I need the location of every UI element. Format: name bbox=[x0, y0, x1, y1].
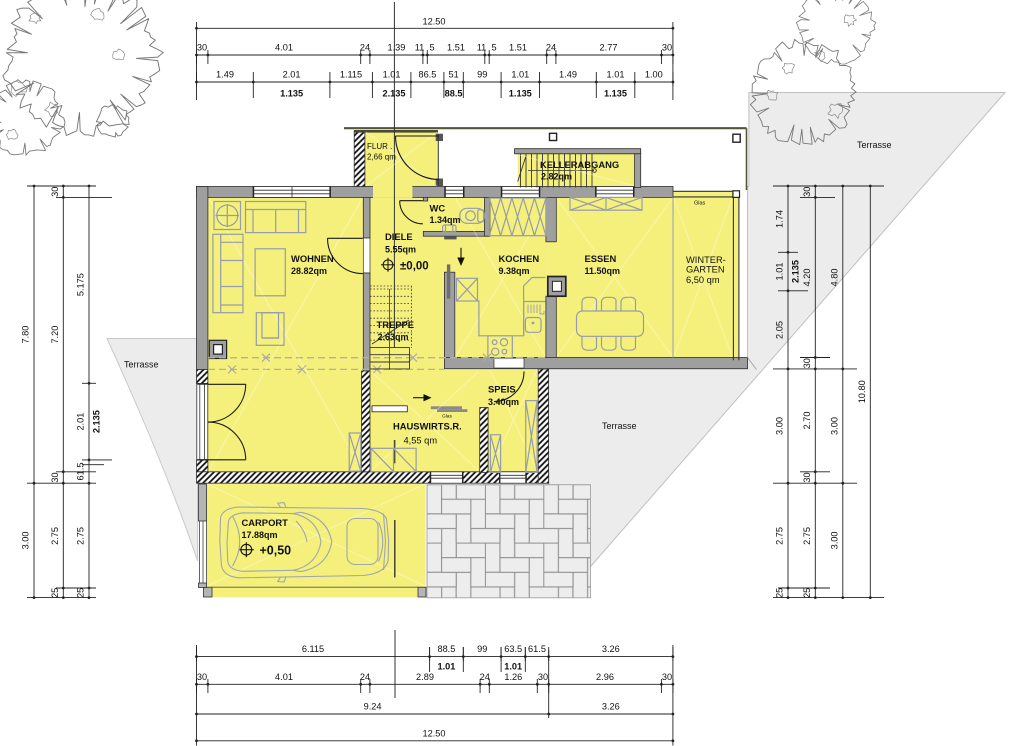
svg-text:30: 30 bbox=[662, 43, 672, 53]
svg-text:DIELE: DIELE bbox=[385, 231, 413, 242]
svg-text:5: 5 bbox=[491, 43, 496, 53]
svg-text:11.50qm: 11.50qm bbox=[585, 266, 621, 276]
svg-text:61.5: 61.5 bbox=[528, 644, 546, 654]
svg-text:1.01: 1.01 bbox=[383, 70, 401, 80]
svg-text:Glas: Glas bbox=[442, 414, 452, 420]
svg-text:2.70: 2.70 bbox=[802, 411, 812, 429]
svg-text:1.26: 1.26 bbox=[504, 672, 522, 682]
svg-text:2.75: 2.75 bbox=[50, 527, 60, 545]
svg-text:6.115: 6.115 bbox=[302, 644, 324, 654]
svg-text:WINTER-: WINTER- bbox=[686, 255, 726, 265]
svg-text:30: 30 bbox=[50, 472, 60, 482]
svg-text:3.26: 3.26 bbox=[602, 702, 620, 712]
svg-text:KOCHEN: KOCHEN bbox=[499, 253, 540, 264]
svg-text:5: 5 bbox=[429, 43, 434, 53]
svg-text:TREPPE: TREPPE bbox=[377, 319, 415, 330]
svg-text:51: 51 bbox=[448, 70, 458, 80]
svg-text:9.24: 9.24 bbox=[364, 702, 382, 712]
svg-text:4.01: 4.01 bbox=[275, 43, 293, 53]
svg-text:1.115: 1.115 bbox=[340, 70, 362, 80]
svg-text:1.74: 1.74 bbox=[775, 210, 785, 228]
svg-text:3.00: 3.00 bbox=[829, 417, 839, 435]
svg-text:86.5: 86.5 bbox=[418, 70, 436, 80]
svg-text:2.135: 2.135 bbox=[791, 260, 801, 283]
svg-text:2.75: 2.75 bbox=[775, 527, 785, 545]
svg-text:2,66 qm: 2,66 qm bbox=[367, 153, 396, 162]
svg-text:2.135: 2.135 bbox=[383, 89, 406, 99]
svg-text:1.51: 1.51 bbox=[509, 43, 527, 53]
svg-text:1.01: 1.01 bbox=[511, 70, 529, 80]
svg-text:3.40qm: 3.40qm bbox=[488, 397, 519, 407]
svg-text:30: 30 bbox=[197, 43, 207, 53]
svg-text:99: 99 bbox=[477, 70, 487, 80]
svg-text:4,55 qm: 4,55 qm bbox=[404, 436, 438, 446]
svg-text:1.01: 1.01 bbox=[607, 70, 625, 80]
svg-text:1.00: 1.00 bbox=[645, 70, 663, 80]
svg-text:30: 30 bbox=[802, 472, 812, 482]
svg-text:30: 30 bbox=[50, 187, 60, 197]
svg-text:7.80: 7.80 bbox=[21, 326, 31, 344]
svg-text:Terrasse: Terrasse bbox=[602, 421, 637, 431]
svg-text:1.51: 1.51 bbox=[447, 43, 465, 53]
svg-text:2.82qm: 2.82qm bbox=[541, 172, 572, 182]
svg-text:1.135: 1.135 bbox=[604, 89, 627, 99]
svg-text:24: 24 bbox=[546, 43, 556, 53]
svg-text:24: 24 bbox=[360, 672, 370, 682]
svg-text:17.88qm: 17.88qm bbox=[242, 530, 278, 540]
svg-text:1.01: 1.01 bbox=[504, 662, 522, 672]
svg-text:2.135: 2.135 bbox=[92, 410, 102, 433]
svg-text:4.20: 4.20 bbox=[802, 269, 812, 287]
svg-text:4.01: 4.01 bbox=[275, 672, 293, 682]
svg-text:1.135: 1.135 bbox=[509, 89, 532, 99]
svg-text:24: 24 bbox=[480, 672, 490, 682]
svg-text:Terrasse: Terrasse bbox=[857, 140, 892, 150]
svg-text:2.75: 2.75 bbox=[802, 527, 812, 545]
svg-text:30: 30 bbox=[802, 187, 812, 197]
svg-text:2.75: 2.75 bbox=[76, 527, 86, 545]
svg-text:88.5: 88.5 bbox=[445, 89, 463, 99]
svg-text:2.05: 2.05 bbox=[775, 321, 785, 339]
svg-text:2.77: 2.77 bbox=[600, 43, 618, 53]
svg-text:5.175: 5.175 bbox=[76, 273, 86, 296]
svg-text:30: 30 bbox=[538, 672, 548, 682]
svg-text:Terrasse: Terrasse bbox=[124, 360, 159, 370]
svg-text:30: 30 bbox=[802, 358, 812, 368]
svg-text:SPEIS: SPEIS bbox=[488, 384, 516, 395]
svg-text:3.00: 3.00 bbox=[829, 531, 839, 549]
svg-text:25: 25 bbox=[775, 588, 785, 598]
svg-text:1.135: 1.135 bbox=[280, 89, 303, 99]
svg-text:GARTEN: GARTEN bbox=[686, 265, 725, 275]
svg-text:2.01: 2.01 bbox=[76, 413, 86, 431]
svg-text:25: 25 bbox=[76, 588, 86, 598]
svg-text:3.00: 3.00 bbox=[775, 417, 785, 435]
svg-text:1.39: 1.39 bbox=[387, 43, 405, 53]
svg-text:±0,00: ±0,00 bbox=[400, 261, 429, 273]
svg-text:ESSEN: ESSEN bbox=[585, 253, 617, 264]
svg-text:2.01: 2.01 bbox=[283, 70, 301, 80]
svg-text:+0,50: +0,50 bbox=[260, 544, 292, 558]
svg-text:12.50: 12.50 bbox=[423, 17, 446, 27]
svg-text:2.63qm: 2.63qm bbox=[378, 332, 409, 342]
svg-text:63.5: 63.5 bbox=[504, 644, 522, 654]
svg-text:9.38qm: 9.38qm bbox=[499, 266, 530, 276]
svg-text:24: 24 bbox=[360, 43, 370, 53]
svg-text:FLUR .: FLUR . bbox=[367, 142, 392, 151]
svg-text:KELLERABGANG: KELLERABGANG bbox=[540, 159, 619, 170]
svg-text:25: 25 bbox=[50, 588, 60, 598]
svg-text:11: 11 bbox=[477, 43, 487, 53]
svg-text:CARPORT: CARPORT bbox=[242, 517, 289, 528]
svg-text:88.5: 88.5 bbox=[437, 644, 455, 654]
svg-text:1.49: 1.49 bbox=[559, 70, 577, 80]
svg-text:12.50: 12.50 bbox=[423, 729, 446, 739]
svg-text:1.01: 1.01 bbox=[775, 263, 785, 281]
svg-text:6,50 qm: 6,50 qm bbox=[686, 275, 720, 285]
svg-text:1.34qm: 1.34qm bbox=[430, 215, 461, 225]
svg-text:1.01: 1.01 bbox=[437, 662, 455, 672]
svg-text:WC: WC bbox=[430, 203, 446, 214]
svg-text:1.49: 1.49 bbox=[216, 70, 234, 80]
svg-text:30: 30 bbox=[197, 672, 207, 682]
svg-text:HAUSWIRTS.R.: HAUSWIRTS.R. bbox=[393, 421, 462, 432]
svg-text:99: 99 bbox=[477, 644, 487, 654]
svg-text:10.80: 10.80 bbox=[857, 380, 867, 403]
svg-text:3.26: 3.26 bbox=[602, 644, 620, 654]
svg-text:Glas: Glas bbox=[694, 201, 706, 207]
svg-text:3.00: 3.00 bbox=[21, 531, 31, 549]
svg-text:2.89: 2.89 bbox=[416, 672, 434, 682]
svg-text:11: 11 bbox=[415, 43, 425, 53]
svg-text:2.96: 2.96 bbox=[596, 672, 614, 682]
svg-text:25: 25 bbox=[802, 588, 812, 598]
svg-text:4.80: 4.80 bbox=[829, 269, 839, 287]
svg-text:7.20: 7.20 bbox=[50, 326, 60, 344]
svg-text:WOHNEN: WOHNEN bbox=[291, 253, 334, 264]
svg-text:5.55qm: 5.55qm bbox=[385, 245, 416, 255]
svg-text:28.82qm: 28.82qm bbox=[291, 266, 327, 276]
svg-text:30: 30 bbox=[662, 672, 672, 682]
